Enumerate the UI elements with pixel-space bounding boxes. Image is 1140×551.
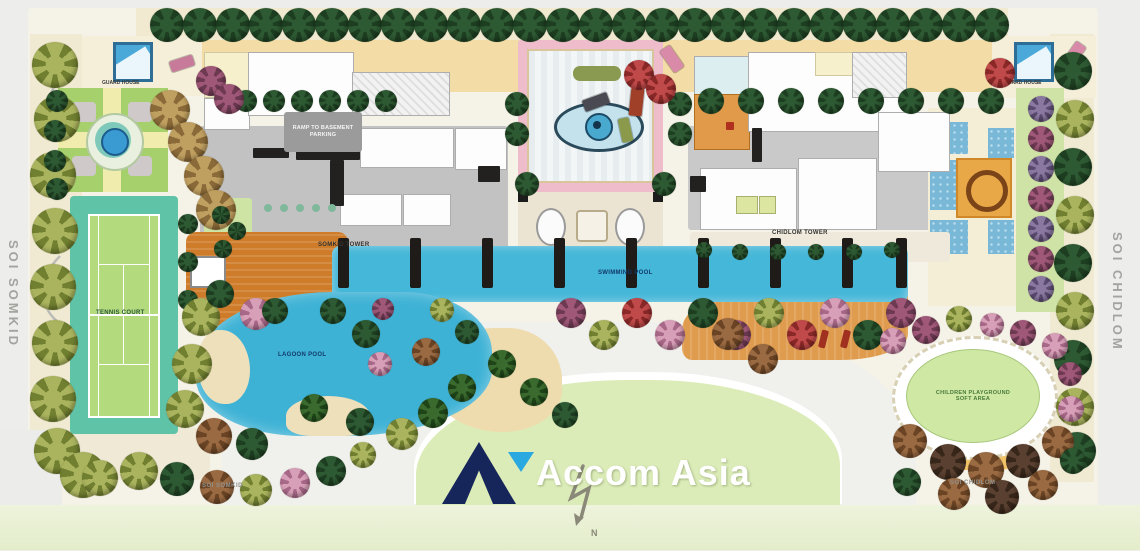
playground-label-line2: SOFT AREA — [956, 396, 990, 402]
tree — [645, 8, 679, 42]
building-room — [798, 158, 877, 230]
reflecting-pool — [988, 128, 1014, 158]
building-room — [759, 196, 776, 214]
tree — [414, 8, 448, 42]
tree — [178, 252, 198, 272]
tree — [82, 460, 118, 496]
tree — [280, 468, 310, 498]
building-room — [340, 194, 402, 226]
tree — [206, 280, 234, 308]
guard-house — [113, 42, 153, 82]
tree — [30, 264, 76, 310]
tree — [612, 8, 646, 42]
tree — [240, 474, 272, 506]
pergola-pier — [410, 238, 421, 288]
tree — [212, 206, 230, 224]
tree — [884, 242, 900, 258]
tree — [1054, 244, 1092, 282]
tree — [319, 90, 341, 112]
tree — [412, 338, 440, 366]
tree — [120, 452, 158, 490]
tree — [262, 298, 288, 324]
tree — [770, 244, 786, 260]
tree — [166, 390, 204, 428]
tree — [368, 352, 392, 376]
furniture — [726, 122, 734, 130]
tree — [622, 298, 652, 328]
tree — [263, 90, 285, 112]
core-wall — [752, 128, 762, 162]
tree — [30, 376, 76, 422]
tree — [372, 298, 394, 320]
tree — [787, 320, 817, 350]
tree — [291, 90, 313, 112]
tree — [216, 8, 250, 42]
tree — [386, 418, 418, 450]
tree — [938, 88, 964, 114]
core-wall — [330, 160, 344, 206]
tree — [32, 320, 78, 366]
tree — [352, 320, 380, 348]
tree — [1028, 216, 1054, 242]
tree — [236, 428, 268, 460]
tree — [810, 8, 844, 42]
tree — [909, 8, 943, 42]
tree — [418, 398, 448, 428]
tree — [876, 8, 910, 42]
logo-brand-text: Accom Asia — [536, 452, 751, 494]
tree — [589, 320, 619, 350]
core-wall — [478, 166, 500, 182]
tree — [843, 8, 877, 42]
tree — [1056, 292, 1094, 330]
road-label-soi-chidlom: SOI CHIDLOM — [1110, 232, 1125, 352]
logo-mountain-shape — [442, 442, 516, 504]
tree — [748, 344, 778, 374]
road-exit-label-right: SOI CHIDLOM — [950, 480, 996, 486]
tree — [1054, 52, 1092, 90]
tree — [1058, 396, 1084, 422]
planter — [296, 204, 304, 212]
tree — [893, 424, 927, 458]
tree — [300, 394, 328, 422]
tree — [46, 178, 68, 200]
tree — [150, 8, 184, 42]
tree — [808, 244, 824, 260]
tree — [579, 8, 613, 42]
tree — [448, 374, 476, 402]
tree — [556, 298, 586, 328]
tree — [898, 88, 924, 114]
tree — [893, 468, 921, 496]
tree — [820, 298, 850, 328]
tree — [505, 122, 529, 146]
tree — [754, 298, 784, 328]
tree — [249, 8, 283, 42]
tree — [32, 208, 78, 254]
tree — [942, 8, 976, 42]
tree — [315, 8, 349, 42]
tree — [946, 306, 972, 332]
tree — [712, 318, 744, 350]
tree — [1042, 333, 1068, 359]
tennis-singles-line — [149, 216, 150, 416]
tree — [214, 240, 232, 258]
tree — [214, 84, 244, 114]
road-label-soi-somkid: SOI SOMKID — [6, 240, 21, 348]
tree — [348, 8, 382, 42]
tree — [1060, 448, 1086, 474]
planter — [264, 204, 272, 212]
tree — [447, 8, 481, 42]
building-room — [403, 194, 451, 226]
tree — [515, 172, 539, 196]
lagoon-pool-label: LAGOON POOL — [278, 352, 326, 358]
accom-asia-logo-icon — [442, 442, 520, 504]
tree — [1028, 276, 1054, 302]
tree — [1010, 320, 1036, 346]
tree — [975, 8, 1009, 42]
north-label: N — [591, 528, 598, 538]
tree — [488, 350, 516, 378]
tree — [688, 298, 718, 328]
tennis-service-line — [98, 364, 150, 365]
tree — [738, 88, 764, 114]
tree — [347, 90, 369, 112]
tree — [381, 8, 415, 42]
tree — [1028, 246, 1054, 272]
playground-lawn: CHILDREN PLAYGROUND SOFT AREA — [906, 349, 1040, 443]
tree — [183, 8, 217, 42]
tree — [880, 328, 906, 354]
tree — [546, 8, 580, 42]
tree — [316, 456, 346, 486]
road-exit-label-left: SOI SOMKID — [202, 483, 243, 489]
tree — [818, 88, 844, 114]
tree — [678, 8, 712, 42]
tree — [172, 344, 212, 384]
building-room — [878, 112, 950, 172]
tree — [696, 242, 712, 258]
tree — [1056, 100, 1094, 138]
fountain-center — [593, 121, 601, 129]
tree — [346, 408, 374, 436]
building-room — [360, 128, 454, 168]
tree — [985, 58, 1015, 88]
tree — [46, 90, 68, 112]
tree — [668, 122, 692, 146]
site-plan: TENNIS COURT RAMP TO BASEMENT PARKING SO… — [0, 0, 1140, 550]
tree — [732, 244, 748, 260]
tree — [1028, 156, 1054, 182]
tree — [858, 88, 884, 114]
fountain-ring — [966, 170, 1008, 212]
tree — [350, 442, 376, 468]
tree — [655, 320, 685, 350]
logo-triangle-shape — [508, 452, 534, 472]
swimming-pool-label: SWIMMING POOL — [598, 270, 653, 276]
building-room — [736, 196, 758, 214]
tree — [1058, 362, 1082, 386]
accom-asia-logo: Accom Asia — [442, 438, 782, 508]
tree — [646, 74, 676, 104]
pergola-pier — [626, 238, 637, 288]
tree — [44, 150, 66, 172]
tree — [375, 90, 397, 112]
tree — [980, 313, 1004, 337]
tree — [1028, 126, 1054, 152]
tree — [505, 92, 529, 116]
tree — [44, 120, 66, 142]
tree — [160, 462, 194, 496]
tree — [1056, 196, 1094, 234]
tree — [930, 444, 966, 480]
tree — [978, 88, 1004, 114]
ramp-label: RAMP TO BASEMENT PARKING — [284, 125, 362, 139]
tree — [853, 320, 883, 350]
pergola-pier — [482, 238, 493, 288]
tree — [777, 8, 811, 42]
tree — [778, 88, 804, 114]
tree — [552, 402, 578, 428]
fountain-court — [956, 158, 1012, 218]
tree — [846, 244, 862, 260]
tree — [698, 88, 724, 114]
tree — [1028, 186, 1054, 212]
lobby-court — [576, 210, 608, 242]
core-wall — [690, 176, 706, 192]
building-room — [455, 128, 507, 170]
tree — [520, 378, 548, 406]
planter — [312, 204, 320, 212]
tree — [912, 316, 940, 344]
building-room — [815, 52, 854, 76]
basement-ramp: RAMP TO BASEMENT PARKING — [284, 112, 362, 152]
reflecting-pool — [988, 220, 1014, 254]
tree — [1028, 96, 1054, 122]
planter — [280, 204, 288, 212]
tree — [1028, 470, 1058, 500]
tree — [480, 8, 514, 42]
tree — [178, 214, 198, 234]
tree — [1054, 148, 1092, 186]
chidlom-tower-label: CHIDLOM TOWER — [772, 230, 828, 236]
guard-house-label: GUARD HOUSE — [102, 80, 140, 86]
tree — [652, 172, 676, 196]
tree — [455, 320, 479, 344]
tree — [228, 222, 246, 240]
pergola-pier — [554, 238, 565, 288]
tree — [32, 42, 78, 88]
tree — [711, 8, 745, 42]
guard-house — [1014, 42, 1054, 82]
planter-bed — [573, 66, 621, 81]
tree — [886, 298, 916, 328]
tree — [320, 298, 346, 324]
somkid-tower-label: SOMKID TOWER — [318, 242, 370, 248]
tree — [513, 8, 547, 42]
tree — [196, 418, 232, 454]
planter — [328, 204, 336, 212]
tree — [430, 298, 454, 322]
tree — [744, 8, 778, 42]
tree — [282, 8, 316, 42]
